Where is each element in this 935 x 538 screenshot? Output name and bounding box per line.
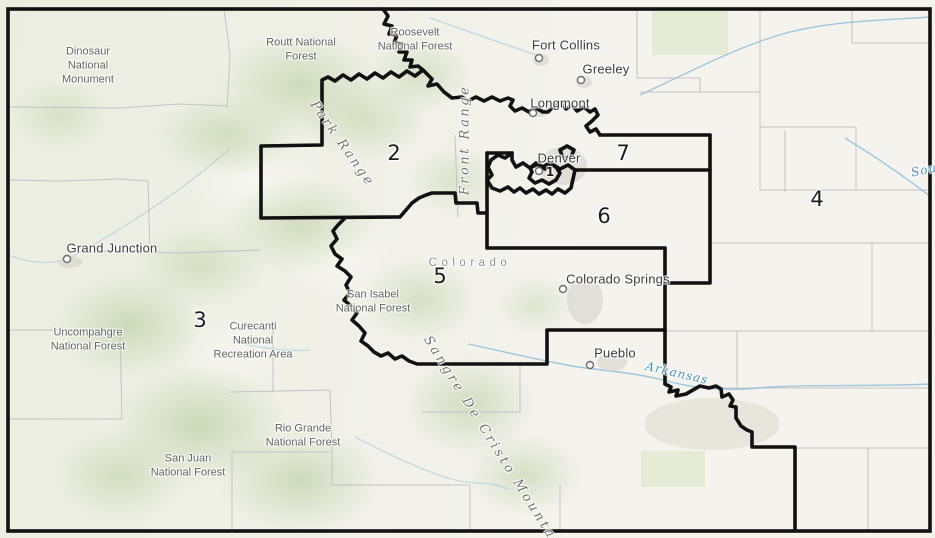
city-marker-pueblo (587, 362, 594, 369)
range-label-front-range: Front Range (458, 85, 473, 196)
area-label-curecanti-national-recreation-area: Curecanti National Recreation Area (214, 320, 293, 361)
district-label-1[interactable]: 1 (546, 165, 554, 179)
area-label-uncompahgre-national-forest: Uncompahgre National Forest (51, 326, 126, 354)
city-marker-denver (536, 168, 543, 175)
city-marker-longmont (530, 110, 537, 117)
area-label-routt-national-forest: Routt National Forest (266, 36, 336, 64)
district-label-4[interactable]: 4 (810, 187, 823, 211)
district-boundaries[interactable] (261, 9, 795, 531)
city-label-greeley: Greeley (583, 62, 630, 77)
city-label-grand-junction: Grand Junction (67, 241, 158, 256)
city-marker-grand-junction (64, 256, 71, 263)
district-label-7[interactable]: 7 (616, 141, 629, 165)
city-marker-fort-collins (536, 55, 543, 62)
city-marker-greeley (578, 77, 585, 84)
city-label-pueblo: Pueblo (594, 346, 636, 361)
city-label-denver: Denver (537, 151, 580, 166)
district-label-6[interactable]: 6 (597, 204, 610, 228)
city-label-longmont: Longmont (530, 96, 589, 111)
district-label-3[interactable]: 3 (193, 308, 206, 332)
city-label-colorado-springs: Colorado Springs (566, 272, 670, 287)
city-marker-colorado-springs (560, 286, 567, 293)
area-label-san-isabel-national-forest: San Isabel National Forest (336, 288, 411, 316)
area-label-dinosaur-national-monument: Dinosaur National Monument (62, 45, 114, 86)
district-label-5[interactable]: 5 (433, 264, 446, 288)
district-label-2[interactable]: 2 (387, 141, 400, 165)
area-label-roosevelt-national-forest: Roosevelt National Forest (378, 26, 453, 54)
area-label-san-juan-national-forest: San Juan National Forest (151, 452, 226, 480)
area-label-rio-grande-national-forest: Rio Grande National Forest (266, 422, 341, 450)
map-feature-layer (0, 0, 935, 538)
map-canvas[interactable]: Dinosaur National Monument Routt Nationa… (0, 0, 935, 538)
city-label-fort-collins: Fort Collins (532, 38, 600, 53)
